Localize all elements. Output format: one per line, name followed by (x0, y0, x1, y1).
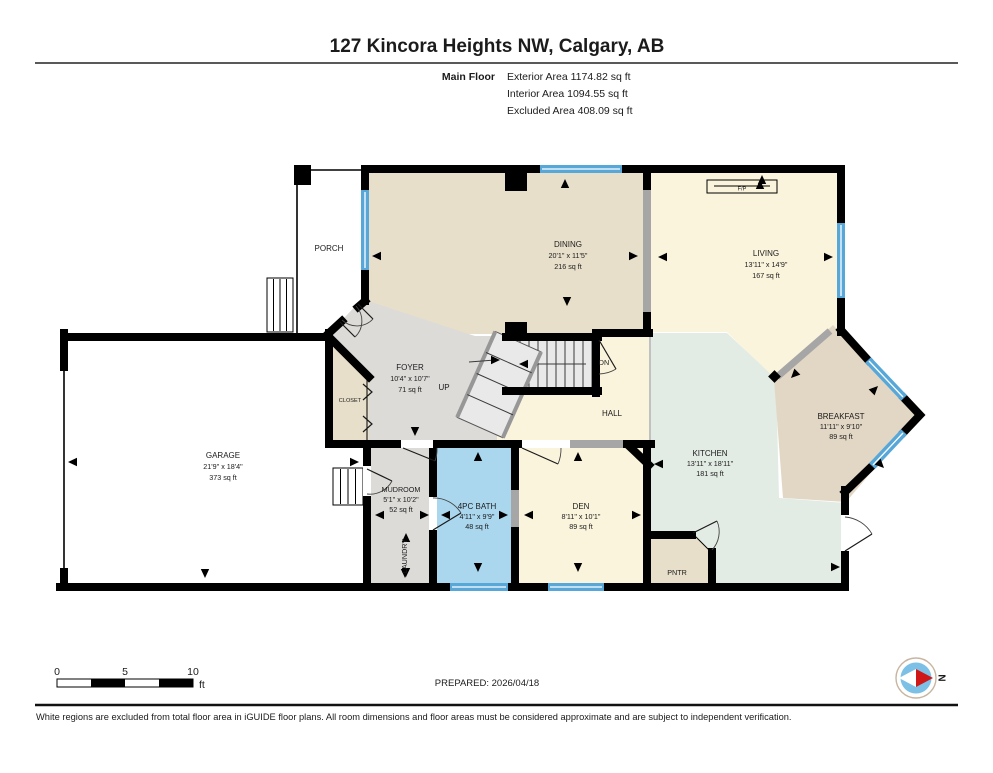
page-title: 127 Kincora Heights NW, Calgary, AB (330, 36, 665, 57)
pantry-label: PNTR (667, 568, 687, 577)
cased-opening-dining-living (643, 190, 651, 312)
room-dims-breakfast: 11'11" x 9'10" (820, 422, 863, 431)
fireplace-label: F/P (738, 187, 747, 193)
room-label-dining: DINING (554, 240, 582, 249)
room-dims-garage: 21'9" x 18'4" (203, 462, 243, 471)
room-area-living: 167 sq ft (752, 271, 780, 280)
room-label-breakfast: BREAKFAST (817, 412, 864, 421)
dimension-arrow (201, 569, 209, 578)
room-area-mudroom: 52 sq ft (389, 505, 413, 514)
room-label-kitchen: KITCHEN (692, 449, 727, 458)
cased-opening-den (570, 440, 623, 448)
room-label-porch: PORCH (315, 244, 344, 253)
dimension-arrow (68, 458, 77, 466)
cased-opening-bath-den (511, 490, 519, 527)
dimension-arrow (350, 458, 359, 466)
scale-unit: ft (199, 679, 205, 691)
prepared-date: PREPARED: 2026/04/18 (435, 678, 539, 689)
laundry-label: LAUNDRY (400, 539, 409, 573)
footer: PREPARED: 2026/04/18 N White regions are… (35, 658, 958, 722)
room-dims-foyer: 10'4" x 10'7" (390, 374, 430, 383)
exterior-area: Exterior Area 1174.82 sq ft (507, 71, 631, 83)
room-dims-dining: 20'1" x 11'5" (549, 251, 588, 260)
room-label-garage: GARAGE (206, 451, 240, 460)
room-dims-bath: 4'11" x 9'9" (460, 512, 495, 521)
room-area-den: 89 sq ft (569, 522, 593, 531)
floor-label: Main Floor (442, 71, 495, 83)
disclaimer-text: White regions are excluded from total fl… (36, 712, 792, 722)
room-dims-living: 13'11" x 14'9" (745, 260, 788, 269)
room-dims-mudroom: 5'1" x 10'2" (383, 495, 419, 504)
room-label-foyer: FOYER (396, 363, 424, 372)
scale-tick-0: 0 (54, 666, 60, 678)
scale-tick-10: 10 (187, 666, 199, 678)
room-label-mudroom: MUDROOM (382, 485, 421, 494)
room-dims-kitchen: 13'11" x 18'11" (687, 459, 734, 468)
kitchen-exterior-door (845, 517, 872, 551)
room-area-dining: 216 sq ft (554, 262, 582, 271)
room-area-kitchen: 181 sq ft (696, 469, 724, 478)
garage-steps (333, 468, 363, 505)
room-dining-fill (365, 172, 647, 334)
room-area-garage: 373 sq ft (209, 473, 237, 482)
stairs-down-label: DN (599, 358, 609, 367)
room-label-den: DEN (573, 502, 590, 511)
hall-label: HALL (602, 409, 623, 418)
header: 127 Kincora Heights NW, Calgary, AB Main… (35, 36, 958, 117)
room-label-bath: 4PC BATH (458, 502, 497, 511)
scale-tick-5: 5 (122, 666, 128, 678)
room-area-breakfast: 89 sq ft (829, 432, 853, 441)
room-area-bath: 48 sq ft (465, 522, 489, 531)
closet-label: CLOSET (339, 398, 362, 404)
compass-icon: N (896, 658, 946, 698)
porch-steps (267, 278, 293, 332)
interior-area: Interior Area 1094.55 sq ft (507, 88, 628, 100)
floor-plan-canvas: 127 Kincora Heights NW, Calgary, AB Main… (0, 0, 993, 768)
scale-bar: 0 5 10 ft (54, 666, 205, 691)
compass-north-label: N (935, 674, 946, 681)
room-area-foyer: 71 sq ft (398, 385, 422, 394)
stairs-up-label: UP (438, 383, 449, 392)
excluded-area: Excluded Area 408.09 sq ft (507, 105, 633, 117)
room-label-living: LIVING (753, 249, 779, 258)
porch-corner-post (294, 165, 311, 185)
room-dims-den: 8'11" x 10'1" (562, 512, 601, 521)
